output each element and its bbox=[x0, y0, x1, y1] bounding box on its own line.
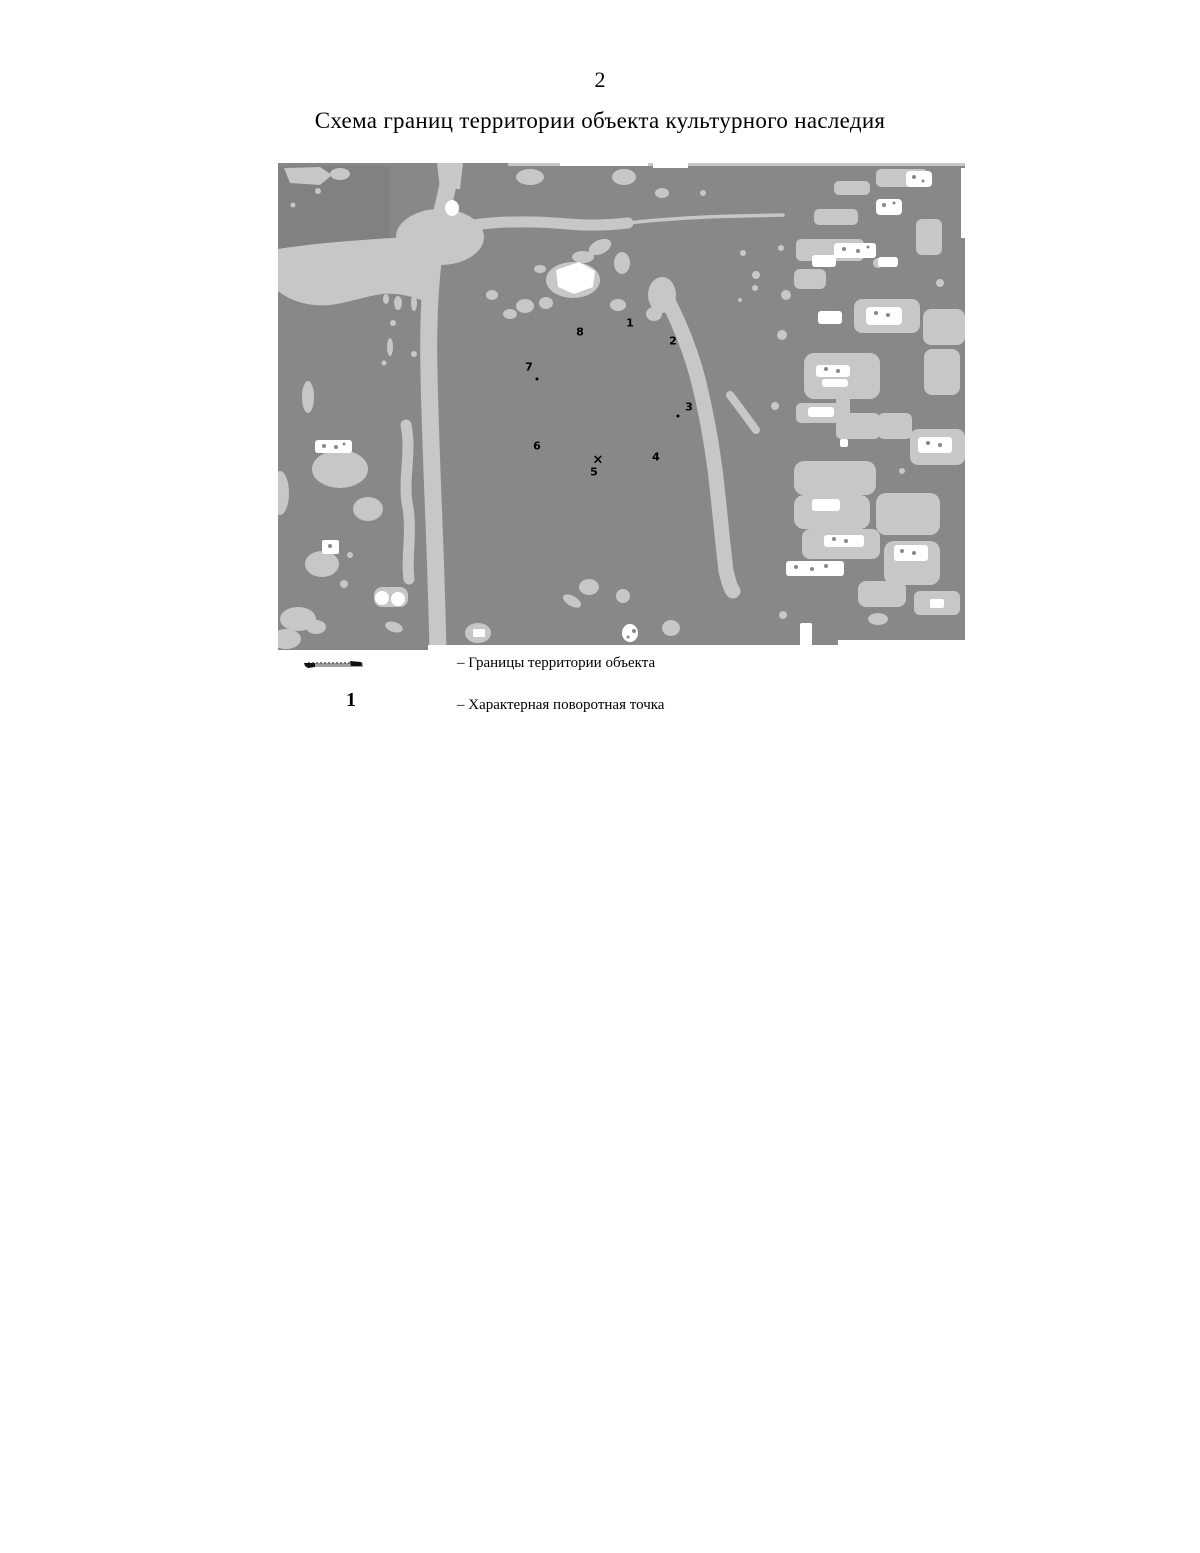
page-title: Схема границ территории объекта культурн… bbox=[0, 108, 1200, 134]
map-point-label-4: 4 bbox=[652, 452, 660, 463]
map-image bbox=[278, 163, 965, 650]
map-point-label-8: 8 bbox=[576, 327, 584, 338]
turning-point-symbol: 1 bbox=[346, 690, 356, 710]
legend-label-turning-point: – Характерная поворотная точка bbox=[457, 696, 664, 714]
boundary-line-icon bbox=[304, 660, 366, 670]
territory-map: 12345678 × bbox=[278, 163, 965, 650]
document-page: 2 Схема границ территории объекта культу… bbox=[0, 0, 1200, 1553]
map-point-label-6: 6 bbox=[533, 441, 541, 452]
page-number: 2 bbox=[0, 68, 1200, 92]
map-point-label-2: 2 bbox=[669, 336, 677, 347]
map-point-label-1: 1 bbox=[626, 318, 634, 329]
map-point-label-3: 3 bbox=[685, 402, 693, 413]
map-point-label-5: 5 bbox=[590, 467, 598, 478]
legend-label-boundary: – Границы территории объекта bbox=[457, 654, 655, 672]
map-point-label-7: 7 bbox=[525, 362, 533, 373]
map-cross-mark: × bbox=[593, 454, 604, 467]
